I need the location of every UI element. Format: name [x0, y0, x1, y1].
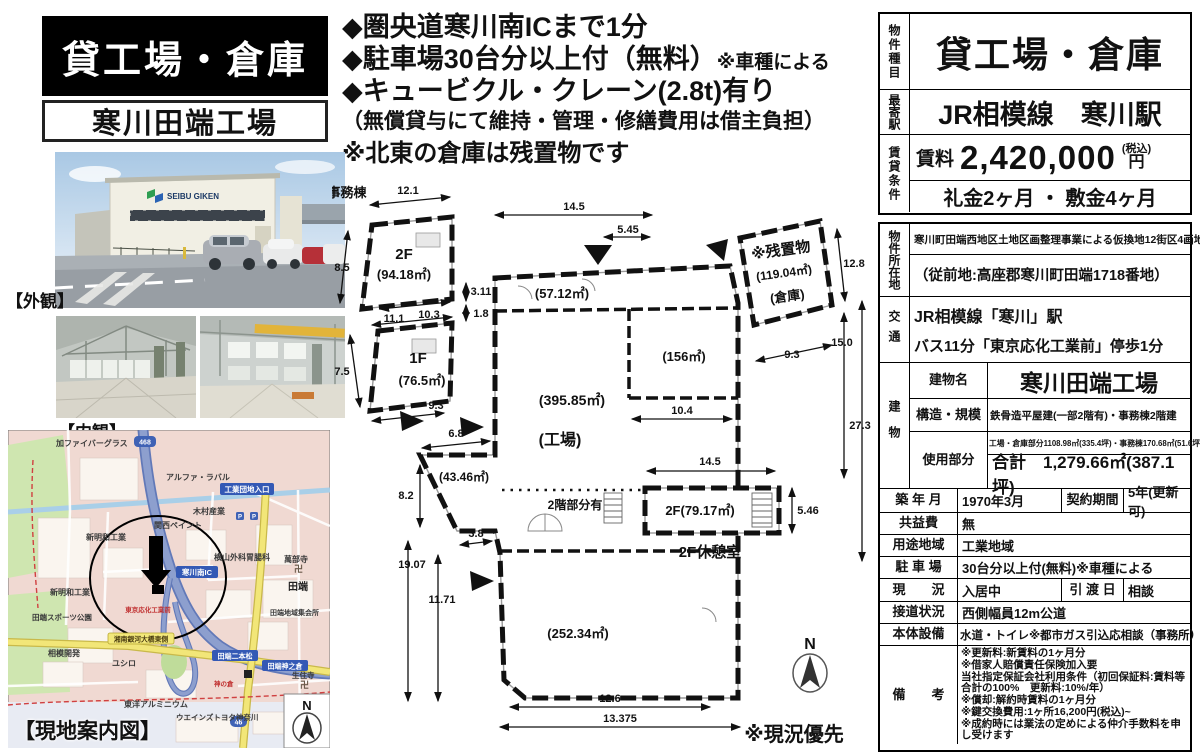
svg-text:N: N: [302, 698, 311, 713]
site-map: 468 46 P P 工業団地入口 寒川南IC 田端二本松 田端神之倉 湘南銀河…: [8, 430, 330, 748]
dim: 8.5: [334, 262, 349, 274]
contract-label: 契約期間: [1062, 489, 1124, 512]
status-value: 入居中: [958, 579, 1062, 601]
room-area: (94.18㎡): [377, 267, 431, 282]
map-label: 新明和工業: [50, 587, 91, 597]
temple-mark: 卍: [294, 564, 303, 574]
plan-note: ※現況優先: [744, 722, 843, 746]
built-label: 築 年 月: [880, 489, 958, 512]
dim: 9.3: [784, 349, 799, 361]
contract-value: 5年(更新可): [1124, 489, 1190, 512]
property-name-banner: 寒川田端工場: [42, 100, 328, 142]
dim: 11.1: [384, 313, 405, 325]
svg-text:SEIBU GIKEN: SEIBU GIKEN: [167, 192, 219, 201]
office-building: 事務棟 2F (94.18㎡) 1F (76.5㎡): [332, 185, 452, 411]
map-label: 加ファイバーグラス: [55, 438, 128, 448]
svg-text:P: P: [252, 515, 256, 521]
dim: 15.0: [831, 337, 852, 349]
highlight-line-1: ◆圏央道寒川南ICまで1分: [342, 12, 877, 44]
dim: 12.1: [397, 185, 418, 197]
room-area: (156㎡): [662, 349, 705, 364]
dim: 19.07: [398, 559, 426, 571]
highlight-line-2: ◆駐車場30台分以上付（無料）※車種による: [342, 44, 877, 76]
spec-label-building: 建物: [880, 363, 910, 488]
room-label: 1F: [409, 350, 427, 367]
dim: 12.8: [843, 258, 864, 270]
remarks-list: ※更新料:新賃料の1ヶ月分 ※借家人賠償責任保険加入要 当社指定保証会社利用条件…: [958, 646, 1190, 744]
remark-line: ※償却:解約時賃料の1ヶ月分: [961, 695, 1187, 707]
rent-unit: 円: [1128, 155, 1144, 171]
room-area: 2F(79.17㎡): [665, 503, 734, 518]
status-label: 現 況: [880, 579, 958, 601]
equip-value: 水道・トイレ※都市ガス引込応相談（事務所）: [958, 624, 1190, 645]
mezzanine-note: 2階部分有: [548, 497, 603, 512]
road-label-nihonmatsu: 田端二本松: [218, 652, 253, 661]
map-compass: N: [284, 694, 330, 748]
office-label: 事務棟: [332, 185, 367, 200]
remarks-label: 備 考: [880, 646, 958, 744]
map-label: 田端スポーツ公園: [32, 612, 92, 622]
deposit-value: 礼金2ヶ月 ・ 敷金4ヶ月: [910, 181, 1190, 211]
highlights: ◆圏央道寒川南ICまで1分 ◆駐車場30台分以上付（無料）※車種による ◆キュー…: [342, 12, 877, 169]
highlight-line-4: （無償貸与にて維持・管理・修繕費用は借主負担）: [342, 110, 877, 135]
dim: 11.71: [429, 594, 456, 606]
road-label-kaminokura: 田端神之倉: [268, 662, 304, 671]
parking-label: 駐 車 場: [880, 557, 958, 578]
equip-label: 本体設備: [880, 624, 958, 645]
spec-table-main: 物件所在地 寒川町田端西地区土地区画整理事業による仮換地12街区4画地 （従前地…: [878, 222, 1192, 752]
dim: 5.45: [617, 224, 638, 236]
bus-stop-label: 東京応化工業前: [125, 605, 171, 614]
access-line2: バス11分「東京応化工業前」停歩1分: [914, 335, 1186, 356]
handover-label: 引 渡 日: [1062, 579, 1124, 601]
map-label: 神の倉: [214, 679, 234, 688]
remark-line: ※借家人賠償責任保険加入要: [961, 660, 1187, 672]
access-line1: JR相模線「寒川」駅: [914, 303, 1186, 327]
stairs-icon: [752, 493, 772, 527]
facility-icon: [244, 670, 252, 678]
spec-value-type: 貸工場・倉庫: [910, 14, 1190, 89]
map-label: アルファ・ラバル: [166, 473, 230, 482]
room-label: (工場): [539, 431, 582, 449]
zone-label: 用途地域: [880, 535, 958, 556]
plan-compass: N: [793, 636, 827, 692]
room-label: 2F休憩室: [679, 543, 742, 561]
room-area: (395.85㎡): [539, 392, 605, 408]
map-label: 関西ペイント: [154, 520, 202, 530]
rent-label: 賃料: [916, 144, 954, 171]
exterior-caption: 【外観】: [6, 287, 74, 312]
room-area: (76.5㎡): [399, 373, 446, 388]
dim: 7.5: [334, 366, 349, 378]
structure-label: 構造・規模: [910, 399, 988, 431]
map-label: 田端地域集会所: [270, 608, 319, 617]
map-label: 木村産業: [192, 506, 226, 516]
dim: 1.8: [473, 308, 488, 320]
room-area: (252.34㎡): [547, 626, 608, 641]
map-label: 東洋アルミニウム: [124, 699, 188, 709]
remark-line: ※更新料:新賃料の1ヶ月分: [961, 648, 1187, 660]
spec-value-station: JR相模線 寒川駅: [910, 90, 1190, 134]
dim: 13.375: [603, 713, 637, 725]
remark-line: ※成約時には業法の定めによる仲介手数料を申し受けます: [961, 719, 1187, 743]
remark-line: 当社指定保証会社利用条件（初回保証料:賃料等合計の100% 更新料:10%/年）: [961, 672, 1187, 696]
map-label: ユシロ: [112, 659, 136, 668]
property-type-banner: 貸工場・倉庫: [42, 16, 328, 96]
building-name: 寒川田端工場: [988, 363, 1190, 398]
room-area: (57.12㎡): [535, 286, 589, 301]
map-label: 相模開発: [48, 648, 81, 658]
dim: 14.5: [563, 201, 584, 213]
dim: 12.6: [599, 693, 620, 705]
dim: 5.46: [797, 505, 818, 517]
spec-label-type: 物件種目: [880, 14, 910, 89]
use-label: 使用部分: [910, 432, 988, 489]
rent-value: 2,420,000: [960, 139, 1116, 177]
structure-value: 鉄骨造平屋建(一部2階有)・事務棟2階建: [988, 399, 1190, 431]
room-label: 2F: [395, 246, 413, 263]
svg-text:P: P: [238, 515, 242, 521]
map-label: 生住寺: [292, 670, 315, 680]
dim: 3.11: [471, 286, 492, 298]
highlight-line-3: ◆キュービクル・クレーン(2.8t)有り: [342, 76, 877, 108]
map-label: 田端: [288, 580, 308, 593]
temple-mark: 卍: [300, 680, 309, 690]
handover-value: 相談: [1124, 579, 1190, 601]
highlight-line-5: ※北東の倉庫は残置物です: [342, 140, 877, 168]
spec-label-terms: 賃貸条件: [880, 135, 910, 212]
dim: 27.3: [849, 420, 870, 432]
floor-plan: .wu{fill:#fff;stroke:#999;stroke-width:1…: [332, 183, 880, 755]
room-area: (43.46㎡): [439, 469, 489, 484]
exterior-photo: SEIBU GIKEN: [55, 152, 345, 308]
map-label: ウエインズトヨタ神奈川: [176, 712, 258, 722]
dim: 8.2: [398, 490, 413, 502]
spec-label-location: 物件所在地: [880, 224, 910, 296]
rent-row: 賃料 2,420,000 (税込) 円: [910, 139, 1157, 177]
map-label: 萬部寺: [284, 554, 308, 564]
building-name-label: 建物名: [910, 363, 988, 398]
spec-panel: 物件種目 貸工場・倉庫 最寄駅 JR相模線 寒川駅 賃貸条件 賃料 2,420,…: [878, 12, 1192, 752]
warehouse-building: ※残置物 (119.04㎡) (倉庫): [740, 221, 832, 325]
built-value: 1970年3月: [958, 489, 1062, 512]
fee-value: 無: [958, 513, 1190, 534]
route-badge: 468: [134, 436, 156, 447]
fee-label: 共益費: [880, 513, 958, 534]
dim: 6.8: [448, 428, 463, 440]
remark-line: ※鍵交換費用:1ヶ所16,200円(税込)~: [961, 707, 1187, 719]
spec-label-station: 最寄駅: [880, 90, 910, 134]
road-label: 接道状況: [880, 602, 958, 623]
map-label: 新明和工業: [86, 532, 127, 542]
location-line1: 寒川町田端西地区土地区画整理事業による仮換地12街区4画地: [910, 224, 1190, 254]
parking-value: 30台分以上付(無料)※車種による: [958, 557, 1190, 578]
interior-photo-2: [200, 316, 345, 418]
svg-text:N: N: [804, 636, 816, 653]
property-type-text: 貸工場・倉庫: [62, 29, 308, 84]
road-label-ic: 寒川南IC: [181, 567, 213, 577]
location-line2: （従前地:高座郡寒川町田端1718番地）: [910, 255, 1190, 293]
dim: 3.8: [468, 528, 483, 540]
spec-table-top: 物件種目 貸工場・倉庫 最寄駅 JR相模線 寒川駅 賃貸条件 賃料 2,420,…: [878, 12, 1192, 215]
interior-photo-1: [56, 316, 196, 418]
highlight-line-2-note: ※車種による: [717, 52, 830, 73]
map-label: 横山外科胃腸科: [214, 552, 270, 562]
road-label-entrance: 工業団地入口: [225, 484, 270, 494]
dim: 9.3: [428, 400, 443, 412]
map-caption: 【現地案内図】: [14, 715, 161, 745]
highlight-line-2-main: ◆駐車場30台分以上付（無料）: [342, 44, 717, 74]
spec-label-access: 交通: [880, 297, 910, 362]
dim: 10.4: [671, 405, 693, 417]
dim: 14.5: [699, 456, 720, 468]
zone-value: 工業地域: [958, 535, 1190, 556]
road-label-bridge: 湘南銀河大橋東側: [114, 635, 169, 644]
road-value: 西側幅員12m公道: [958, 602, 1190, 623]
svg-text:468: 468: [139, 440, 151, 447]
stairs-icon: [604, 493, 622, 523]
